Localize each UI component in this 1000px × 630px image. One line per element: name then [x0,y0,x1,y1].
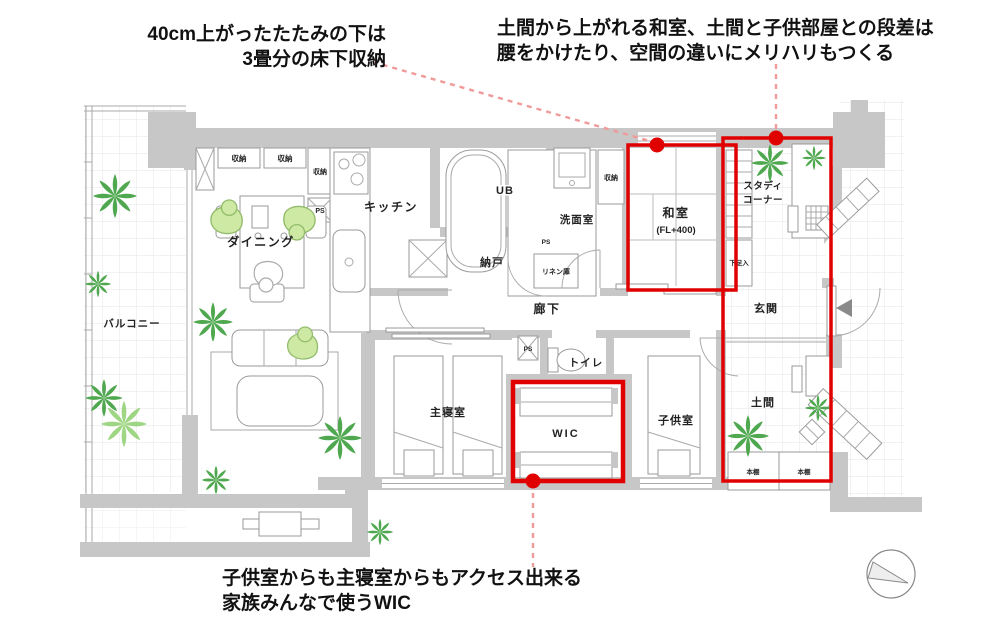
label-kitchen: キッチン [364,200,418,214]
label-genkan: 玄関 [754,301,778,315]
annotation-wic-line1: 子供室からも主寝室からもアクセス出来る [222,566,582,591]
label-shelf: 本棚 [798,467,812,476]
label-ps: PS [542,239,551,246]
annotation-wic-line2: 家族みんなで使うWIC [222,591,582,616]
balcony-tiles [84,106,186,556]
label-storage: 収納 [232,153,247,163]
label-wic: WIC [552,428,579,440]
label-washitsu-fl: (FL+400) [656,225,695,236]
annotation-tatami-line1: 40cm上がったたたみの下は [140,22,386,47]
label-nando: 納戸 [480,255,504,269]
label-study1: スタディ [743,180,782,192]
label-doma: 土間 [751,395,775,409]
kitchen-furniture [330,148,370,332]
floor-plan-svg: バルコニー ダイニング キッチン UB 洗面室 収納 収納 収納 収納 PS P… [0,0,1000,630]
leader-dot-doma [769,131,784,146]
label-study2: コーナー [743,195,783,206]
leader-dot-wic [526,474,541,489]
annotation-tatami: 40cm上がったたたみの下は 3畳分の床下収納 [140,22,386,73]
annotation-doma-line2: 腰をかけたり、空間の違いにメリハリもつくる [497,41,934,66]
label-storage: 収納 [604,173,618,182]
label-master: 主寝室 [430,405,466,419]
leader-dot-washitsu [650,138,665,153]
label-ps: PS [524,346,533,353]
label-washroom: 洗面室 [560,213,595,226]
label-shelf: 本棚 [747,467,761,476]
label-shoes: 下足入 [729,259,749,267]
label-balcony: バルコニー [103,318,160,330]
label-ub: UB [496,185,514,197]
label-toilet: トイレ [569,357,604,369]
annotation-doma-line1: 土間から上がれる和室、土間と子供部屋との段差は [497,16,934,41]
label-hallway: 廊下 [533,301,560,316]
label-linen: リネン庫 [542,267,570,276]
label-storage: 収納 [278,153,293,163]
label-ps: PS [315,208,325,215]
label-storage: 収納 [313,167,327,176]
label-washitsu: 和室 [661,205,689,220]
annotation-tatami-line2: 3畳分の床下収納 [140,47,386,72]
annotation-wic: 子供室からも主寝室からもアクセス出来る 家族みんなで使うWIC [222,566,582,617]
label-kids: 子供室 [658,413,694,427]
annotation-doma: 土間から上がれる和室、土間と子供部屋との段差は 腰をかけたり、空間の違いにメリハ… [497,16,934,67]
floor-plan-page: バルコニー ダイニング キッチン UB 洗面室 収納 収納 収納 収納 PS P… [0,0,1000,630]
label-dining: ダイニング [227,234,295,249]
